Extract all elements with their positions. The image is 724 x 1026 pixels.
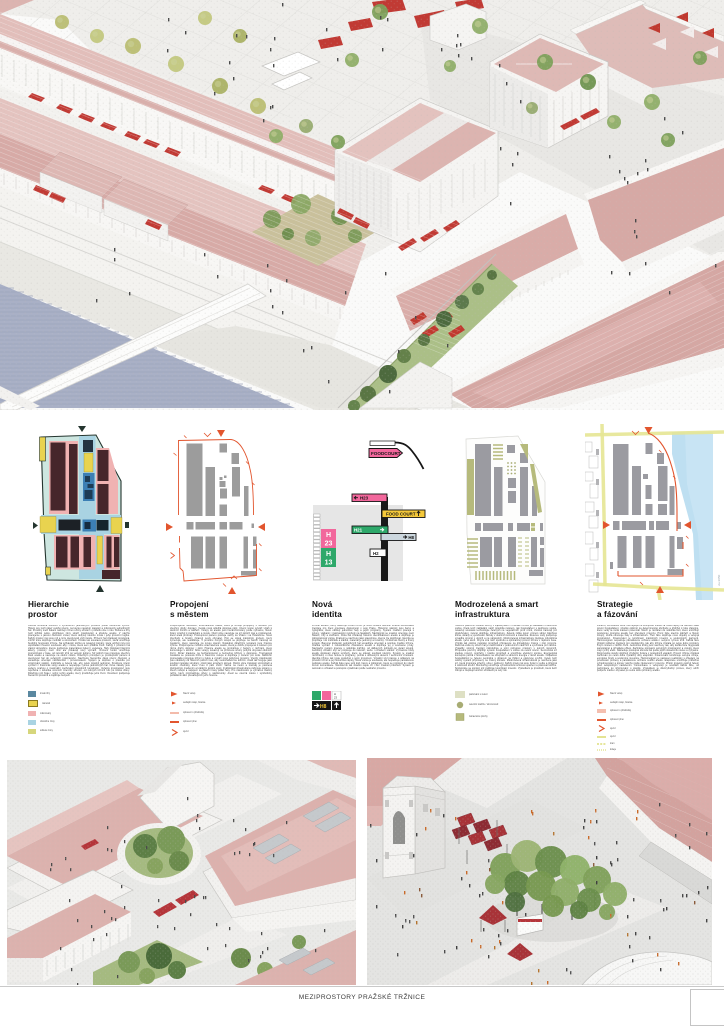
svg-text:H: H: [326, 532, 331, 539]
svg-text:H2: H2: [373, 551, 379, 556]
svg-text:H: H: [334, 692, 336, 696]
svg-text:H: H: [326, 551, 331, 558]
svg-text:23: 23: [325, 541, 333, 548]
svg-text:H23: H23: [360, 496, 369, 501]
svg-text:13: 13: [325, 560, 333, 567]
svg-text:H8: H8: [408, 535, 414, 540]
svg-text:via:2050: via:2050: [717, 574, 721, 586]
svg-text:H8: H8: [320, 704, 327, 710]
svg-text:FOOD COURT: FOOD COURT: [386, 512, 416, 517]
svg-text:FOODCOURT: FOODCOURT: [371, 451, 401, 456]
svg-text:H21: H21: [354, 528, 363, 533]
